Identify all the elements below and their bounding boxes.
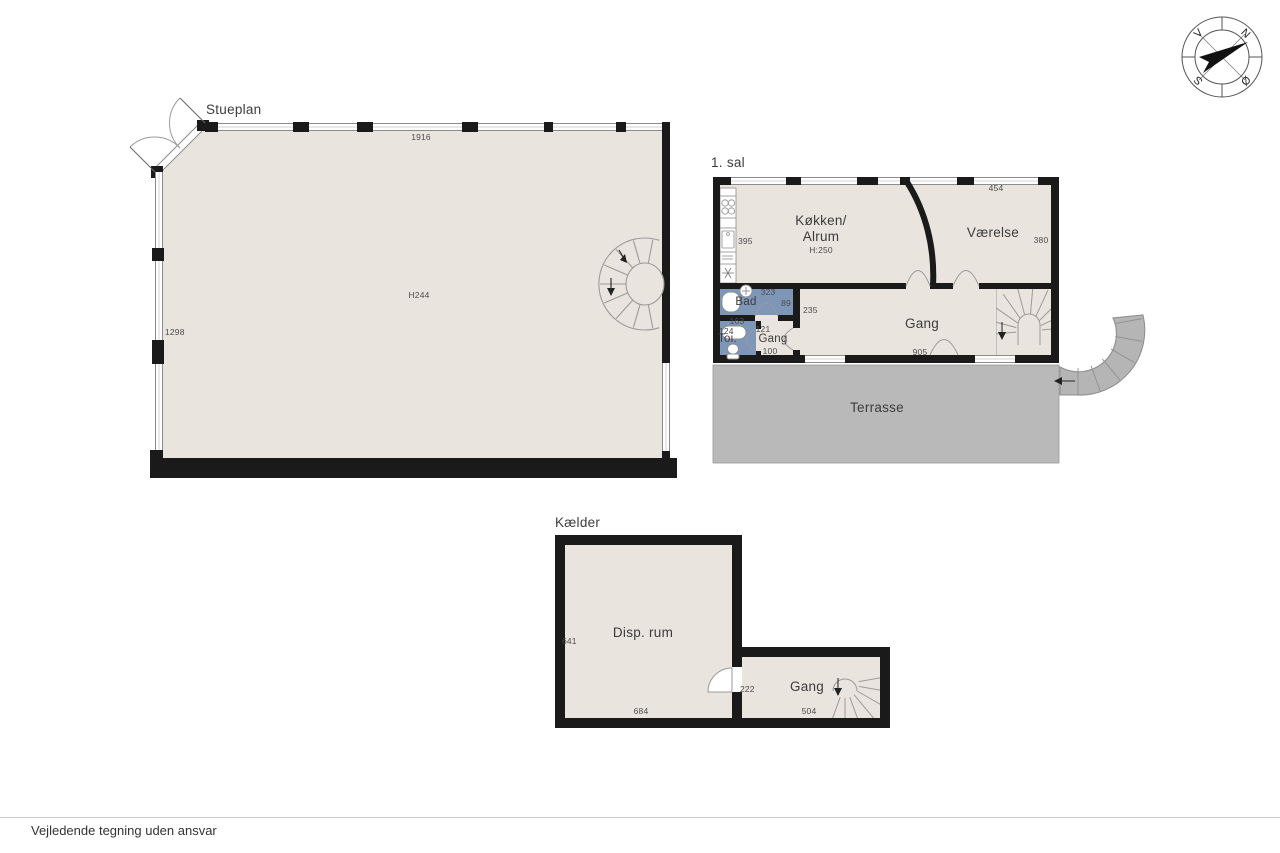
stueplan-plan	[130, 98, 677, 478]
first-floor-top-window-wall	[713, 177, 1059, 185]
bad-dim-top: 323	[761, 288, 776, 297]
basement-gang-label: Gang	[790, 680, 824, 694]
disp-dim-left: 641	[562, 637, 577, 646]
floorplan-page: N V S Ø	[0, 0, 1280, 853]
compass-rose: N V S Ø	[1182, 17, 1262, 97]
gang-small-label: Gang	[758, 334, 787, 346]
stueplan-top-window-wall	[205, 122, 662, 132]
stueplan-left-window-wall	[150, 172, 164, 478]
gang-dim-left: 235	[803, 306, 818, 315]
footer-divider	[0, 817, 1280, 818]
disp-room-label: Disp. rum	[613, 626, 673, 640]
footer-disclaimer: Vejledende tegning uden ansvar	[31, 823, 217, 838]
bad-label: Bad	[735, 297, 756, 309]
toi-label: Toi.	[718, 334, 737, 346]
stueplan-right-wall	[662, 122, 670, 478]
vaerelse-dim-top: 454	[989, 184, 1004, 193]
stueplan-title: Stueplan	[206, 103, 261, 117]
stueplan-bottom-wall	[150, 458, 677, 478]
basement-plan	[555, 535, 895, 734]
first-floor-right-wall	[1051, 177, 1059, 363]
vaerelse-dim-right: 380	[1034, 236, 1049, 245]
basement-gang-dim-bottom: 504	[802, 707, 817, 716]
toi-dim-top: 163	[730, 317, 745, 326]
gang-label: Gang	[905, 317, 939, 331]
disp-dim-bottom: 684	[634, 707, 649, 716]
vaerelse-label: Værelse	[967, 226, 1019, 240]
gang-dim-bottom: 905	[913, 348, 928, 357]
kitchen-counter	[720, 188, 736, 283]
stueplan-dim-top: 1916	[411, 133, 431, 142]
first-floor-bottom-wall	[713, 355, 1059, 363]
stueplan-dim-left: 1298	[165, 328, 185, 337]
kitchen-label-line1: Køkken/	[795, 214, 846, 228]
kitchen-height: H:250	[809, 246, 833, 255]
gang-small-dim-bottom: 100	[763, 347, 778, 356]
toilet-icon	[728, 344, 739, 354]
stueplan-room-height: H244	[408, 291, 429, 300]
sink-icon	[722, 231, 734, 248]
first-floor-title: 1. sal	[711, 156, 745, 170]
bad-dim-right: 89	[781, 299, 791, 308]
basement-door-dim: 222	[740, 685, 755, 694]
kitchen-label-line2: Alrum	[803, 230, 840, 244]
external-curved-stair	[1054, 315, 1145, 395]
basement-title: Kælder	[555, 516, 600, 530]
kitchen-dim-left: 395	[738, 237, 753, 246]
terrace-label: Terrasse	[850, 401, 904, 415]
floorplan-drawing: N V S Ø	[0, 0, 1280, 853]
